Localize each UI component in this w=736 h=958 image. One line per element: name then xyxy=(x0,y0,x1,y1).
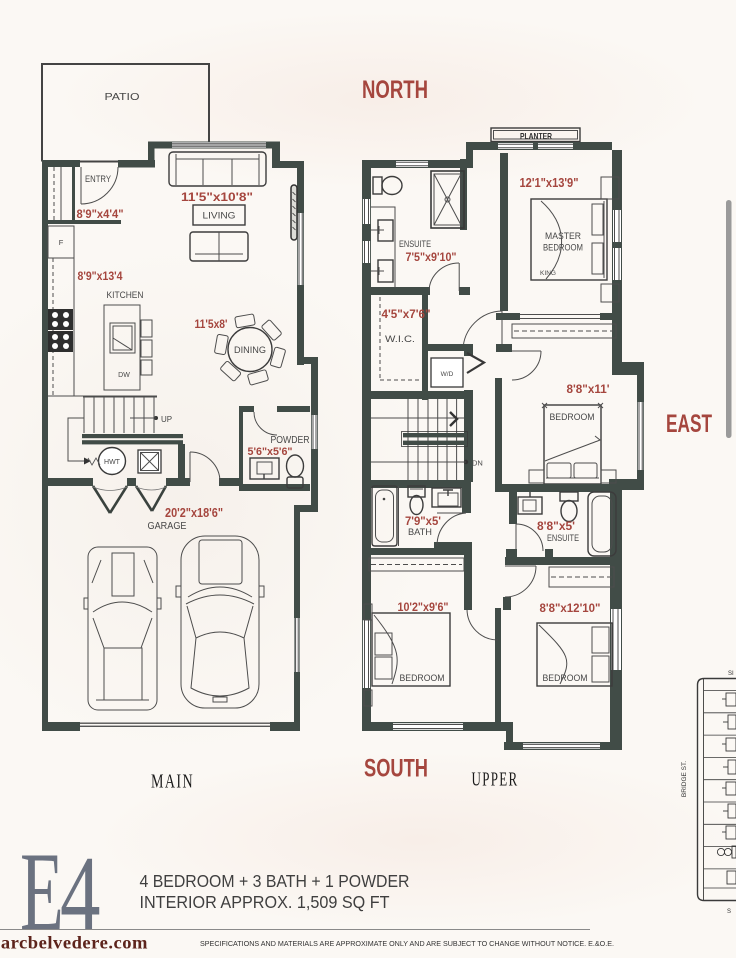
svg-text:DN: DN xyxy=(472,459,483,468)
svg-text:KITCHEN: KITCHEN xyxy=(107,290,144,301)
svg-text:KING: KING xyxy=(540,270,556,277)
svg-text:BATH: BATH xyxy=(408,527,432,538)
svg-text:4'5"x7'6": 4'5"x7'6" xyxy=(382,309,431,321)
svg-text:EAST: EAST xyxy=(666,410,712,438)
svg-text:PATIO: PATIO xyxy=(105,92,140,103)
svg-text:BEDROOM: BEDROOM xyxy=(543,673,588,684)
svg-text:W.I.C.: W.I.C. xyxy=(385,334,415,345)
svg-text:POWDER: POWDER xyxy=(271,435,310,446)
svg-text:PLANTER: PLANTER xyxy=(520,131,552,141)
svg-text:SPECIFICATIONS AND MATERIALS A: SPECIFICATIONS AND MATERIALS ARE APPROXI… xyxy=(200,939,614,948)
svg-text:20'2"x18'6": 20'2"x18'6" xyxy=(165,505,223,520)
svg-text:SOUTH: SOUTH xyxy=(364,755,428,783)
svg-text:INTERIOR APPROX. 1,509 SQ FT: INTERIOR APPROX. 1,509 SQ FT xyxy=(140,892,390,912)
svg-text:UPPER: UPPER xyxy=(472,769,519,791)
svg-text:8'8"x5': 8'8"x5' xyxy=(537,521,575,533)
svg-text:8'8"x12'10": 8'8"x12'10" xyxy=(540,603,601,615)
svg-text:GARAGE: GARAGE xyxy=(148,521,187,532)
svg-text:ENTRY: ENTRY xyxy=(85,174,112,185)
svg-text:12'1"x13'9": 12'1"x13'9" xyxy=(520,176,579,190)
svg-text:11'5"x10'8": 11'5"x10'8" xyxy=(181,192,253,204)
svg-text:F: F xyxy=(59,238,64,247)
svg-text:NORTH: NORTH xyxy=(362,76,428,104)
svg-text:BEDROOM: BEDROOM xyxy=(543,243,583,254)
svg-text:8'9"x4'4": 8'9"x4'4" xyxy=(77,209,124,221)
svg-text:SI: SI xyxy=(728,671,734,677)
svg-text:DW: DW xyxy=(118,372,130,379)
svg-text:BEDROOM: BEDROOM xyxy=(400,673,445,684)
svg-text:10'2"x9'6": 10'2"x9'6" xyxy=(398,602,449,614)
svg-text:5'6"x5'6": 5'6"x5'6" xyxy=(248,446,293,458)
svg-text:parcbelvedere.com: parcbelvedere.com xyxy=(0,933,148,953)
svg-text:W/D: W/D xyxy=(441,371,454,378)
svg-text:BRIDGE ST.: BRIDGE ST. xyxy=(681,761,688,797)
svg-text:UP: UP xyxy=(161,415,172,424)
svg-text:4 BEDROOM + 3 BATH + 1 POWDER: 4 BEDROOM + 3 BATH + 1 POWDER xyxy=(140,871,410,891)
svg-text:ENSUITE: ENSUITE xyxy=(399,239,431,250)
svg-text:11'5x8': 11'5x8' xyxy=(195,319,228,331)
svg-text:DINING: DINING xyxy=(234,345,266,356)
svg-text:7'5"x9'10": 7'5"x9'10" xyxy=(406,252,457,264)
svg-text:8'8"x11': 8'8"x11' xyxy=(567,384,610,396)
svg-text:ENSUITE: ENSUITE xyxy=(547,533,579,544)
svg-text:LIVING: LIVING xyxy=(203,211,236,222)
svg-text:MAIN: MAIN xyxy=(151,771,194,793)
svg-text:HWT: HWT xyxy=(104,459,121,466)
svg-text:BEDROOM: BEDROOM xyxy=(550,412,595,423)
svg-text:MASTER: MASTER xyxy=(545,231,581,242)
svg-text:S: S xyxy=(727,909,731,915)
svg-text:8'9"x13'4: 8'9"x13'4 xyxy=(78,271,124,283)
